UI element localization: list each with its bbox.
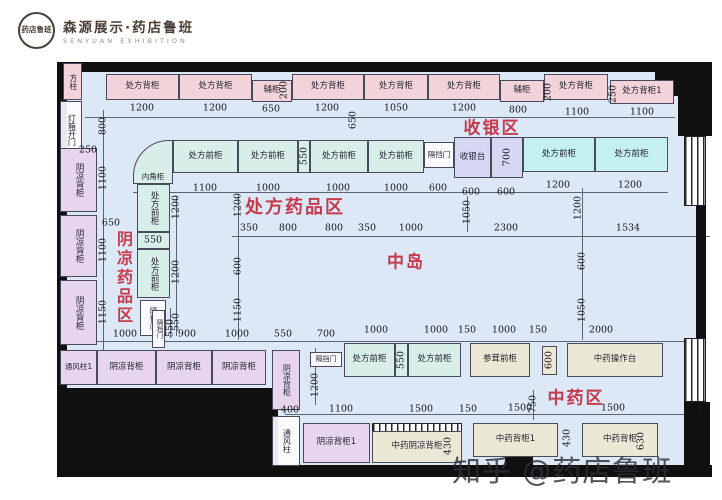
zone-label-中岛: 中岛 xyxy=(387,248,425,273)
dim-label: 600 xyxy=(544,351,555,369)
dim-label: 550 xyxy=(274,329,292,340)
dim-label: 1100 xyxy=(98,166,109,190)
cabinet-阴凉背柜: 阴凉背柜 xyxy=(60,280,97,345)
dim-label: 800 xyxy=(98,117,109,135)
zone-label-收银区: 收银区 xyxy=(464,114,521,139)
dim-label: 1100 xyxy=(565,107,589,118)
watermark: 知乎 @药店鲁班 xyxy=(452,448,672,490)
dim-label: 150 xyxy=(529,325,547,336)
dim-label: 1200 xyxy=(618,180,642,191)
cabinet-处方背柜: 处方背柜 xyxy=(428,74,500,100)
cabinet-处方前柜: 处方前柜 xyxy=(408,343,461,377)
cabinet-隔挡门: 隔挡门 xyxy=(310,352,342,367)
cabinet-处方前柜: 处方前柜 xyxy=(310,140,368,173)
cabinet-阴凉背柜1: 阴凉背柜1 xyxy=(303,423,370,463)
cabinet-阴凉背柜: 阴凉背柜 xyxy=(60,215,97,277)
dim-label: 150 xyxy=(685,405,703,416)
dim-label: 1200 xyxy=(315,103,339,114)
cabinet-阴凉背柜: 阴凉背柜 xyxy=(156,350,212,385)
cabinet-处方前柜: 处方前柜 xyxy=(595,137,668,172)
dim-label: 430 xyxy=(562,429,573,447)
wall xyxy=(57,62,657,72)
cabinet-处方前柜: 处方前柜 xyxy=(523,137,595,172)
dim-label: 1500 xyxy=(508,403,532,414)
dim-label: 2000 xyxy=(589,325,613,336)
cabinet-隔挡门: 隔挡门 xyxy=(152,310,165,348)
cabinet-处方背柜: 处方背柜 xyxy=(179,74,252,100)
dim-label: 650 xyxy=(102,218,120,229)
dim-label: 1500 xyxy=(601,403,625,414)
dim-label: 600 xyxy=(577,252,588,270)
dim-label: 1200 xyxy=(171,260,182,284)
page: 药店鲁班 森源展示·药店鲁班 SENYUAN EXHIBITION 方柱处方背柜… xyxy=(0,0,722,500)
dimension-line xyxy=(232,236,710,237)
zone-label-阴凉药品区: 阴凉药品区 xyxy=(111,231,135,326)
cabinet-辅柜: 辅柜 xyxy=(500,80,544,102)
dim-label: 1100 xyxy=(329,404,353,415)
dim-label: 550 xyxy=(299,147,310,165)
dim-label: 1000 xyxy=(256,183,280,194)
dim-label: 400 xyxy=(281,405,299,416)
dim-label: 1100 xyxy=(98,238,109,262)
dim-label: 600 xyxy=(497,187,515,198)
cabinet-阴凉背柜: 阴凉背柜 xyxy=(97,350,156,385)
dim-label: 900 xyxy=(178,329,196,340)
cabinet-隔挡门: 隔挡门 xyxy=(424,142,454,168)
dim-label: 1100 xyxy=(630,107,654,118)
dim-label: 700 xyxy=(502,148,513,166)
dim-label: 250 xyxy=(608,85,619,103)
cabinet-处方前柜: 处方前柜 xyxy=(368,140,424,173)
dim-label: 1200 xyxy=(452,103,476,114)
cabinet-收银台: 收银台 xyxy=(454,137,491,178)
dim-label: 1050 xyxy=(462,200,473,224)
dim-label: 150 xyxy=(458,325,476,336)
wall xyxy=(678,96,712,136)
cabinet-处方前柜: 处方前柜 xyxy=(137,184,170,232)
zone-label-处方药品区: 处方药品区 xyxy=(245,193,345,219)
zone-label-中药区: 中药区 xyxy=(548,384,605,409)
dim-label: 1050 xyxy=(384,103,408,114)
dim-label: 1150 xyxy=(233,298,244,322)
cabinet-处方前柜: 处方前柜 xyxy=(238,140,298,173)
wall xyxy=(696,206,706,338)
cabinet-方柱: 方柱 xyxy=(63,63,82,100)
cabinet-阴凉背柜: 阴凉背柜 xyxy=(212,350,266,385)
dim-label: 1050 xyxy=(577,298,588,322)
dim-label: 1000 xyxy=(384,183,408,194)
wall xyxy=(57,388,278,477)
dim-label: 1000 xyxy=(225,329,249,340)
cabinet-处方背柜: 处方背柜 xyxy=(364,74,428,100)
cabinet-处方前柜: 处方前柜 xyxy=(137,249,170,298)
cabinet-处方背柜1: 处方背柜1 xyxy=(610,80,674,104)
dim-label: 1000 xyxy=(364,325,388,336)
dim-label: 1200 xyxy=(171,195,182,219)
cabinet-处方背柜: 处方背柜 xyxy=(544,74,608,100)
dim-label: 2300 xyxy=(494,223,518,234)
cabinet-处方背柜: 处方背柜 xyxy=(106,74,179,100)
cabinet-阴凉背柜: 阴凉背柜 xyxy=(272,350,300,410)
dim-label: 350 xyxy=(240,223,258,234)
dim-label: 1534 xyxy=(616,223,640,234)
dim-label: 600 xyxy=(233,257,244,275)
cabinet-通风柱: 通风柱 xyxy=(272,416,300,466)
dim-label: 550 xyxy=(396,351,407,369)
dim-label: 800 xyxy=(325,223,343,234)
dim-label: 600 xyxy=(462,187,480,198)
cabinet-处方前柜: 处方前柜 xyxy=(173,140,238,173)
dim-label: 1200 xyxy=(233,193,244,217)
dim-label: 200 xyxy=(543,83,554,101)
dim-label: 200 xyxy=(279,81,290,99)
cabinet-中药操作台: 中药操作台 xyxy=(567,343,663,377)
window-hatch xyxy=(684,136,706,206)
window-hatch xyxy=(684,338,706,402)
dim-label: 1200 xyxy=(310,373,321,397)
dim-label: 1200 xyxy=(130,103,154,114)
dim-label: 1000 xyxy=(399,223,423,234)
dim-label: 650 xyxy=(348,111,359,129)
cabinet-处方背柜: 处方背柜 xyxy=(292,74,364,100)
dim-label: 700 xyxy=(317,329,335,340)
cabinet-处方前柜: 处方前柜 xyxy=(344,343,395,377)
dim-label: 1000 xyxy=(492,325,516,336)
dim-label: 1000 xyxy=(326,183,350,194)
dim-label: 650 xyxy=(262,104,280,115)
dim-label: 1200 xyxy=(546,180,570,191)
dim-label: 350 xyxy=(358,223,376,234)
dim-label: 600 xyxy=(429,183,447,194)
dim-label: 1000 xyxy=(424,325,448,336)
dim-label: 1000 xyxy=(113,329,137,340)
dim-label: 150 xyxy=(459,404,477,415)
floor-plan: 方柱处方背柜处方背柜辅柜处方背柜处方背柜处方背柜辅柜处方背柜处方背柜1内角柜处方… xyxy=(0,0,722,500)
dim-label: 550 xyxy=(165,319,176,337)
cabinet-通风柱1: 通风柱1 xyxy=(60,350,97,385)
dim-label: 800 xyxy=(279,223,297,234)
cabinet-阴凉背柜: 阴凉背柜 xyxy=(60,148,97,212)
dim-label: 550 xyxy=(144,235,162,246)
cabinet-参茸前柜: 参茸前柜 xyxy=(470,343,530,377)
dim-label: 1200 xyxy=(573,196,584,220)
dim-label: 250 xyxy=(79,145,97,156)
dim-label: 1500 xyxy=(409,404,433,415)
dim-label: 1100 xyxy=(193,183,217,194)
dim-label: 1150 xyxy=(98,300,109,324)
dim-label: 1200 xyxy=(203,103,227,114)
